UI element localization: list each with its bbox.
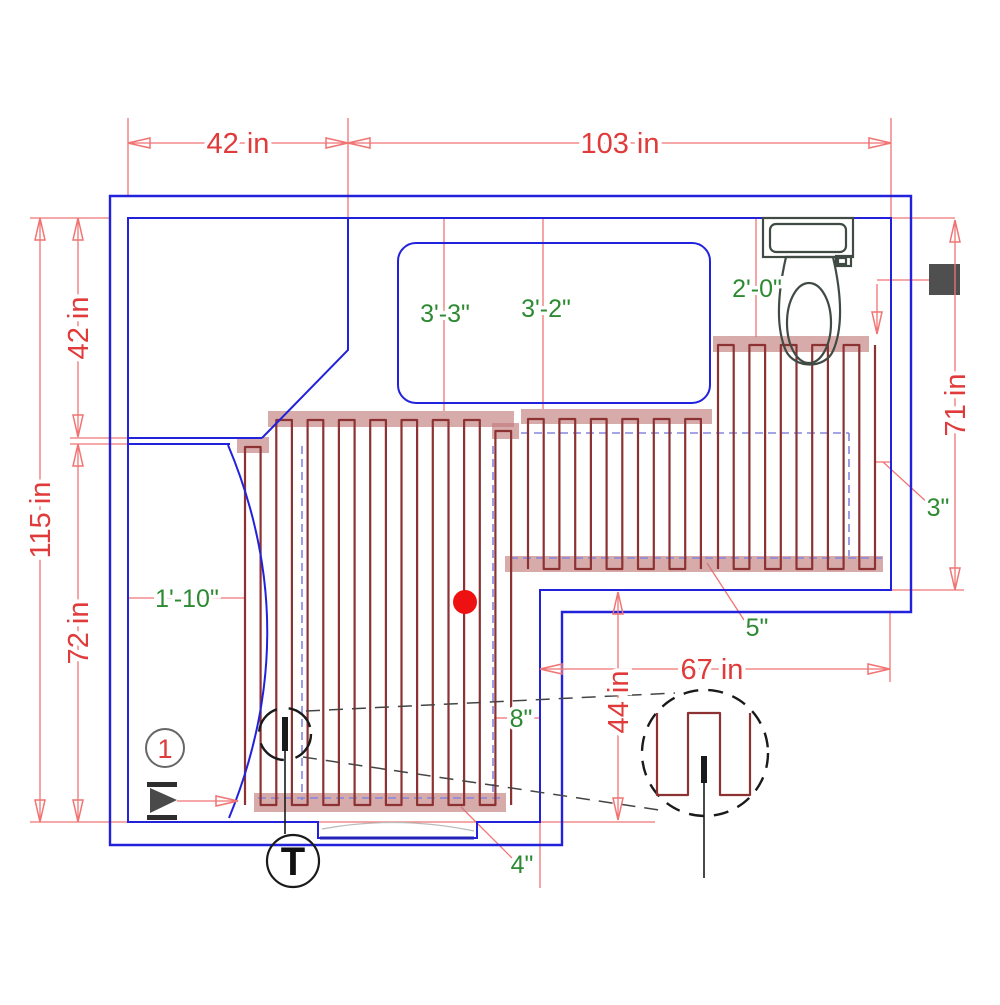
label-left-115: 115 in <box>25 482 57 559</box>
mat-tape <box>237 437 269 453</box>
mat-boundary-dashed <box>258 433 884 800</box>
mat-tape <box>521 409 712 424</box>
toilet-flush-handle-detail <box>838 258 846 264</box>
thermostat-symbol: T <box>267 835 319 887</box>
extension-lines <box>30 118 964 888</box>
floor-plan-svg: T 1 42 in 103 in 115 in 42 in 72 in 71 i… <box>0 0 1000 1000</box>
power-lead-bar-top <box>147 782 177 787</box>
extension-line <box>461 807 512 858</box>
power-lead-bar-bottom <box>147 815 177 820</box>
clearance-labels: 3'-3" 3'-2" 2'-0" 1'-10" 3" 5" 8" 4" <box>155 275 949 879</box>
label-top-42: 42 in <box>207 128 270 160</box>
label-door-clearance: 4" <box>511 851 534 879</box>
heating-mat-middle-cable <box>528 419 701 569</box>
mat-number: 1 <box>157 734 172 764</box>
label-mat-edge: 5" <box>746 614 769 642</box>
sensor-detail <box>259 590 768 878</box>
label-tub-left: 3'-3" <box>420 300 470 328</box>
floor-plan: T 1 42 in 103 in 115 in 42 in 72 in 71 i… <box>0 0 1000 1000</box>
label-mat-gap: 8" <box>510 705 533 733</box>
label-toilet-center: 2'-0" <box>732 275 782 303</box>
label-top-103: 103 in <box>580 128 659 160</box>
floor-sensor-dot <box>453 590 477 614</box>
label-left-72: 72 in <box>63 602 95 665</box>
label-closet-width: 1'-10" <box>155 585 219 613</box>
dimension-lines <box>40 143 955 822</box>
label-wall-clearance: 3" <box>927 494 950 522</box>
label-tub-right: 3'-2" <box>521 295 571 323</box>
label-left-42: 42 in <box>63 297 95 360</box>
label-bottom-67: 67 in <box>681 654 744 686</box>
inner-wall <box>128 218 891 838</box>
closet-partition-wall <box>262 218 348 438</box>
heating-mat-right-cable <box>718 345 875 569</box>
mat-tape-bars <box>237 336 883 812</box>
label-right-71: 71 in <box>940 374 972 437</box>
thermostat-letter: T <box>281 840 305 884</box>
power-lead-triangle <box>150 788 177 813</box>
mat-number-callout: 1 <box>146 729 238 820</box>
label-bottom-44: 44 in <box>603 671 635 734</box>
toilet-tank-lid <box>770 224 846 252</box>
door-swing-arc <box>322 822 474 831</box>
